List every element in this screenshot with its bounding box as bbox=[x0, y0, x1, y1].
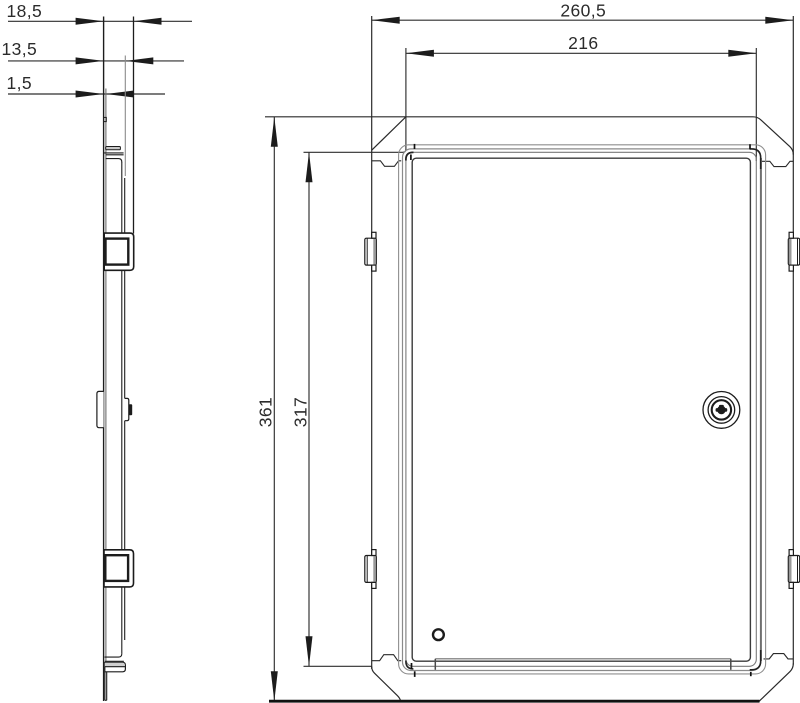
svg-text:1,5: 1,5 bbox=[7, 73, 33, 93]
svg-text:317: 317 bbox=[291, 397, 311, 427]
svg-text:216: 216 bbox=[568, 33, 598, 53]
svg-text:18,5: 18,5 bbox=[7, 1, 43, 21]
svg-text:260,5: 260,5 bbox=[560, 0, 606, 20]
svg-text:13,5: 13,5 bbox=[2, 39, 38, 59]
svg-text:361: 361 bbox=[255, 397, 275, 427]
